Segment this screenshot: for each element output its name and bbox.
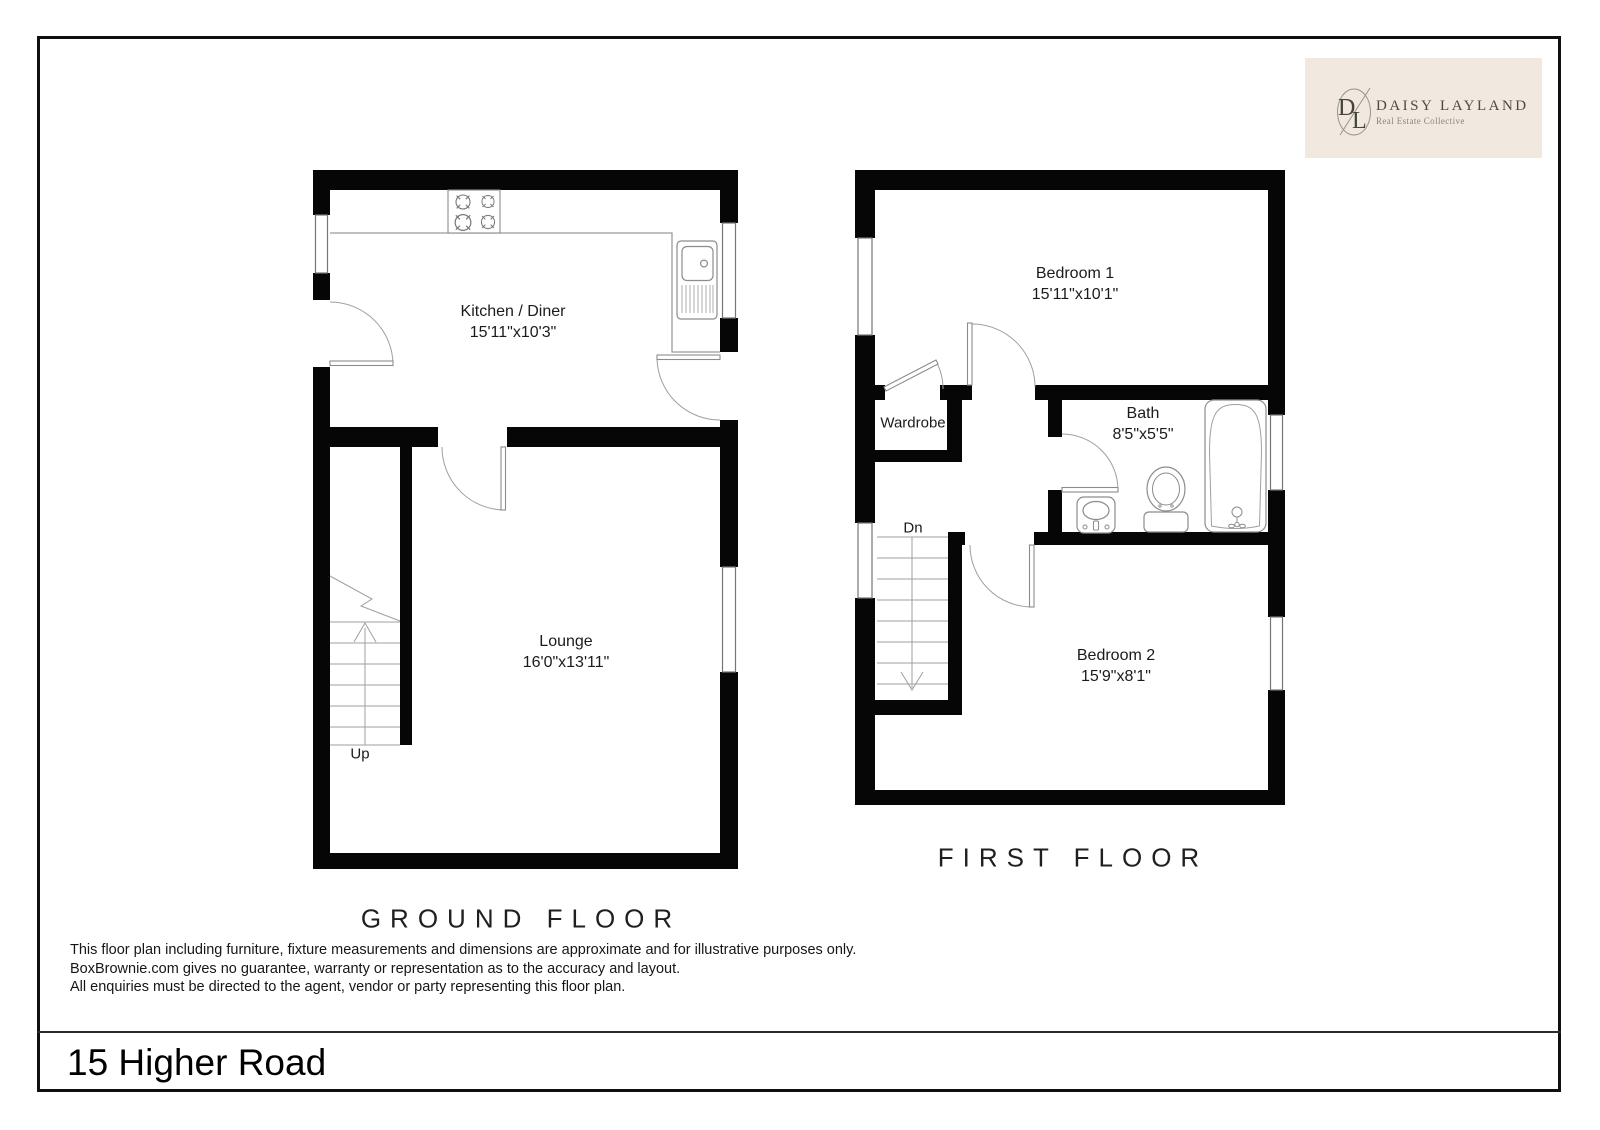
kitchen-name: Kitchen / Diner — [461, 301, 566, 322]
ground-floor-plan — [313, 170, 738, 869]
bedroom2-name: Bedroom 2 — [1077, 645, 1155, 666]
wardrobe-label: Wardrobe — [880, 415, 945, 432]
lounge-label: Lounge 16'0"x13'11" — [523, 631, 610, 673]
disclaimer-line-1: This floor plan including furniture, fix… — [70, 941, 856, 960]
bedroom1-door — [968, 323, 1036, 387]
wardrobe-door — [884, 360, 943, 391]
bath-dims: 8'5"x5'5" — [1112, 424, 1173, 445]
lounge-name: Lounge — [523, 631, 610, 652]
first-floor-title: FIRST FLOOR — [938, 843, 1208, 874]
bedroom1-label: Bedroom 1 15'11"x10'1" — [1032, 263, 1119, 305]
bath-label: Bath 8'5"x5'5" — [1112, 403, 1173, 445]
kitchen-sink-icon — [677, 241, 717, 319]
stairs-up — [330, 576, 400, 745]
kitchen-dims: 15'11"x10'3" — [461, 322, 566, 343]
toilet-icon — [1144, 467, 1188, 532]
ground-floor-walls — [313, 170, 738, 869]
stove-icon — [448, 190, 500, 233]
logo-monogram-l: L — [1352, 108, 1367, 134]
bathtub-icon — [1205, 400, 1266, 532]
kitchen-lounge-door — [442, 447, 506, 510]
kitchen-entry-door-left — [330, 302, 393, 366]
kitchen-entry-door-right — [657, 355, 720, 420]
logo-name: DAISY LAYLAND — [1376, 99, 1529, 114]
property-address: 15 Higher Road — [67, 1042, 326, 1084]
stairs-down-label: Dn — [903, 520, 922, 537]
kitchen-label: Kitchen / Diner 15'11"x10'3" — [461, 301, 566, 343]
stairs-up-label: Up — [350, 746, 369, 763]
floorplan-page: Kitchen / Diner 15'11"x10'3" Lounge 16'0… — [0, 0, 1600, 1130]
title-bar-divider — [37, 1031, 1561, 1033]
bedroom2-door — [970, 545, 1034, 607]
bath-name: Bath — [1112, 403, 1173, 424]
stairs-down — [877, 537, 948, 690]
disclaimer-line-3: All enquiries must be directed to the ag… — [70, 978, 856, 997]
bedroom1-dims: 15'11"x10'1" — [1032, 284, 1119, 305]
bath-door — [1062, 434, 1118, 492]
logo-tagline: Real Estate Collective — [1376, 117, 1465, 126]
logo-monogram-icon: D L — [1305, 58, 1385, 158]
bedroom2-label: Bedroom 2 15'9"x8'1" — [1077, 645, 1155, 687]
bathroom-sink-icon — [1077, 497, 1115, 533]
bedroom1-name: Bedroom 1 — [1032, 263, 1119, 284]
lounge-dims: 16'0"x13'11" — [523, 652, 610, 673]
disclaimer-line-2: BoxBrownie.com gives no guarantee, warra… — [70, 960, 856, 979]
agency-logo: D L DAISY LAYLAND Real Estate Collective — [1305, 58, 1542, 158]
ground-floor-title: GROUND FLOOR — [361, 904, 681, 935]
bedroom2-dims: 15'9"x8'1" — [1077, 666, 1155, 687]
disclaimer-text: This floor plan including furniture, fix… — [70, 941, 856, 997]
